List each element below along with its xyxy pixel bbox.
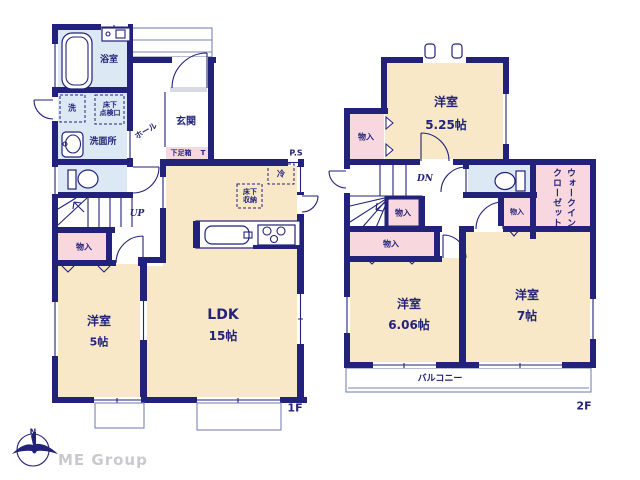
kitchen-sink-icon bbox=[205, 226, 249, 244]
compass-icon bbox=[12, 432, 58, 466]
room-label-ldk-size: 15帖 bbox=[209, 330, 238, 344]
label-underfloor-storage-line2: 収納 bbox=[243, 196, 257, 204]
floor2-label: 2F bbox=[576, 401, 591, 414]
room-label-ldk-name: LDK bbox=[207, 307, 238, 323]
room-label-walk-in-closet: ウォークインクローゼット bbox=[549, 168, 577, 230]
room-label-west606-size: 6.06帖 bbox=[388, 319, 430, 333]
floor1-plan bbox=[34, 24, 318, 403]
room-label-entrance: 玄関 bbox=[176, 116, 196, 128]
washbasin-icon bbox=[62, 132, 83, 157]
label-storage-1f: 物入 bbox=[76, 242, 92, 251]
floorplan-drawing bbox=[0, 0, 640, 480]
casement-leaf-left bbox=[425, 44, 435, 58]
label-underfloor-hatch-line2: 点検口 bbox=[100, 109, 121, 117]
label-pipe-space: P.S bbox=[289, 148, 302, 157]
label-wic-line1: ウォークイン bbox=[565, 168, 575, 228]
toilet-2f-icon bbox=[495, 171, 525, 191]
label-shoe-box: 下足箱 bbox=[171, 149, 192, 157]
toilet-1f-icon bbox=[68, 170, 98, 189]
label-storage-2f-b: 物入 bbox=[395, 208, 411, 217]
brand-logo-text: ME Group bbox=[58, 451, 148, 469]
stove-icon bbox=[258, 225, 295, 245]
label-stairs-up: UP bbox=[130, 209, 145, 219]
label-stairs-dn: DN bbox=[417, 174, 433, 184]
label-storage-2f-c: 物入 bbox=[510, 208, 524, 216]
label-underfloor-hatch: 床下点検口 bbox=[100, 101, 121, 117]
label-underfloor-storage-line1: 床下 bbox=[243, 188, 257, 196]
stairs-1f bbox=[58, 198, 132, 227]
label-storage-2f-d: 物入 bbox=[383, 239, 399, 248]
room-label-washroom: 洗面所 bbox=[89, 137, 116, 147]
casement-leaf-right bbox=[452, 44, 462, 58]
room-label-west525-name: 洋室 bbox=[434, 96, 458, 110]
label-washer: 洗 bbox=[68, 103, 76, 112]
room-label-west7-size: 7帖 bbox=[517, 310, 537, 324]
compass-north-label: N bbox=[30, 427, 37, 436]
label-underfloor-hatch-line1: 床下 bbox=[100, 101, 121, 109]
label-underfloor-storage: 床下収納 bbox=[243, 188, 257, 204]
floor1-label: 1F bbox=[287, 403, 302, 416]
room-label-bath: 浴室 bbox=[100, 55, 118, 65]
terrace-left bbox=[95, 403, 144, 428]
label-wic-line2: クローゼット bbox=[551, 168, 561, 228]
room-label-west7-name: 洋室 bbox=[515, 289, 539, 303]
room-label-west525-size: 5.25帖 bbox=[425, 119, 467, 133]
room-label-balcony: バルコニー bbox=[418, 374, 463, 384]
room-label-west5-size: 5帖 bbox=[90, 337, 109, 350]
floorplan-page: 浴室 洗 床下点検口 洗面所 ホール 玄関 下足箱 T UP 物入 洋室 5帖 … bbox=[0, 0, 640, 480]
label-shoe-t: T bbox=[201, 149, 206, 157]
label-fridge-space: 冷 bbox=[277, 169, 285, 178]
label-storage-2f-a: 物入 bbox=[358, 132, 374, 141]
terrace-right bbox=[197, 403, 281, 430]
room-label-west606-name: 洋室 bbox=[397, 298, 421, 312]
room-label-west5-name: 洋室 bbox=[87, 315, 111, 329]
kitchen-counter bbox=[193, 221, 300, 249]
